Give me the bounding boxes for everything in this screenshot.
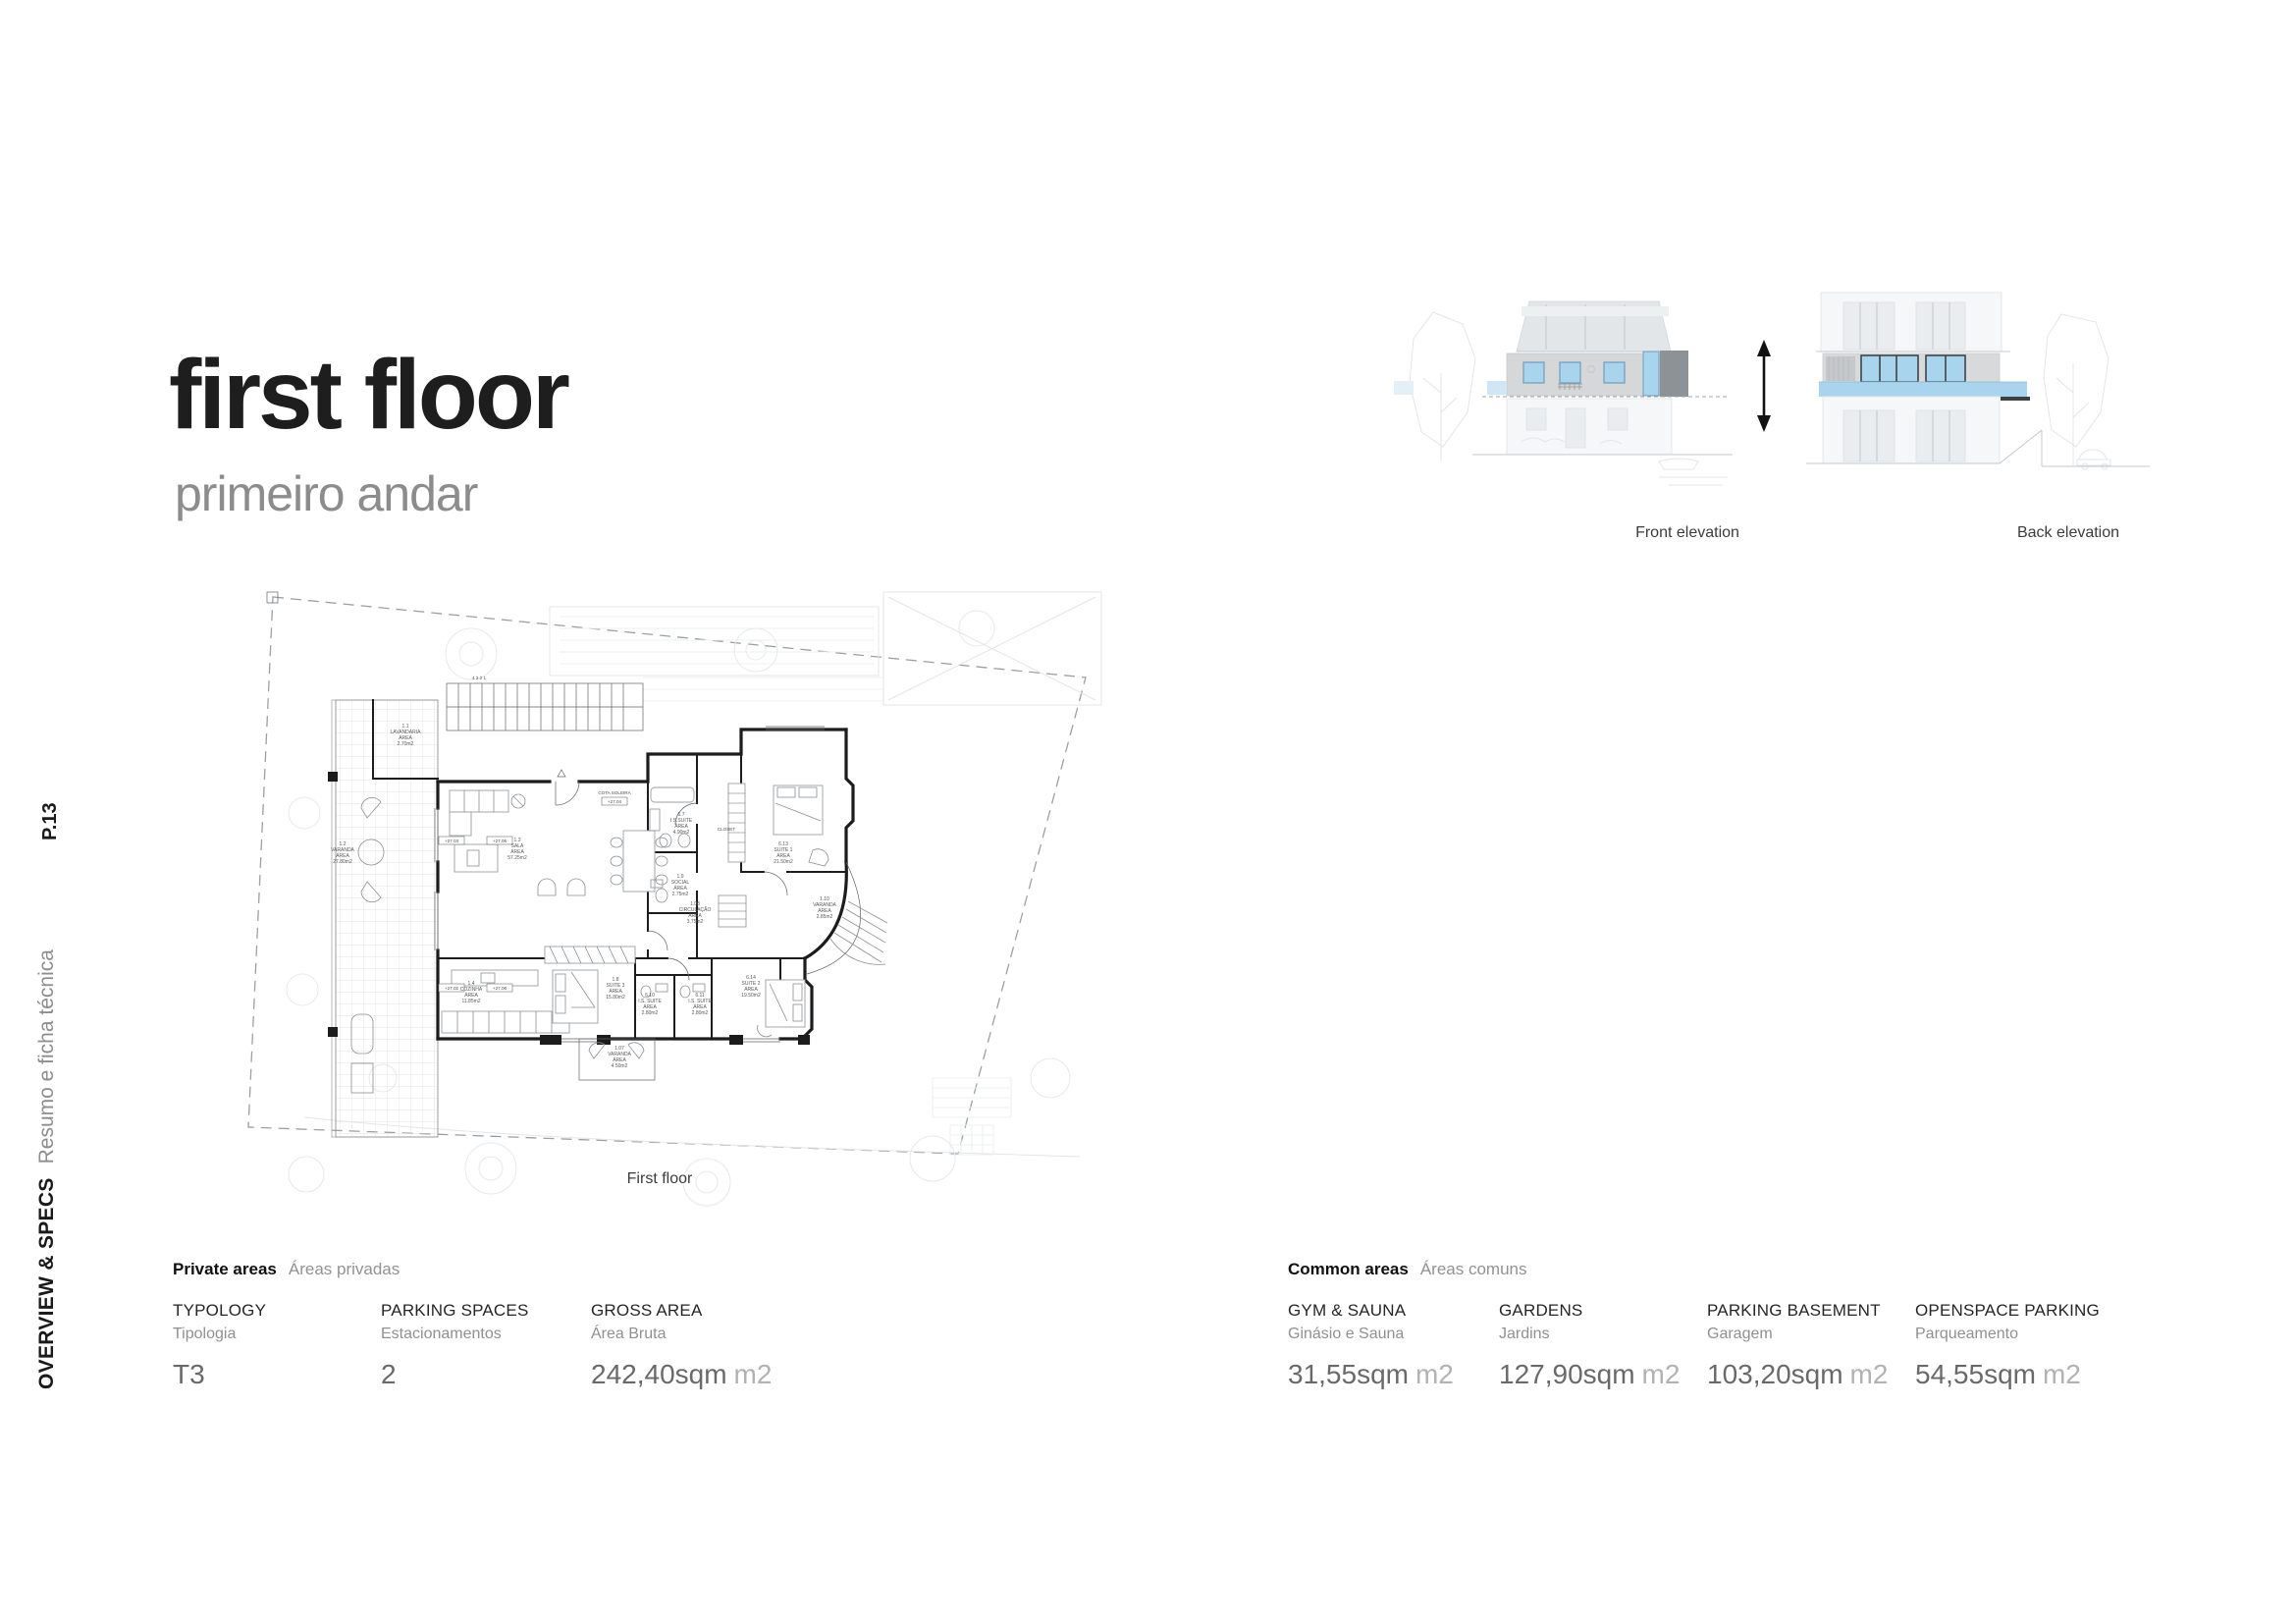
svg-text:ÁREA: ÁREA (818, 907, 831, 914)
svg-text:19.50m2: 19.50m2 (741, 993, 761, 999)
svg-text:2.80m2: 2.80m2 (692, 1010, 709, 1016)
room-label: 1.10VARANDAÁREA2.85m2 (813, 896, 836, 920)
svg-text:2.75m2: 2.75m2 (672, 892, 689, 897)
svg-text:ÁREA: ÁREA (464, 992, 478, 999)
svg-text:2.70m2: 2.70m2 (398, 741, 414, 747)
svg-text:ÁREA: ÁREA (674, 823, 688, 830)
page-subtitle: primeiro andar (175, 469, 477, 518)
svg-text:15.80m2: 15.80m2 (606, 995, 625, 1001)
svg-text:21.50m2: 21.50m2 (774, 859, 793, 865)
svg-text:ÁREA: ÁREA (776, 852, 790, 859)
room-label: 6.14SUITE 2ÁREA19.50m2 (741, 975, 761, 999)
spec-typology: TYPOLOGY Tipologia T3 (173, 1301, 381, 1390)
balcony-strip (328, 700, 438, 1137)
elevation-drawings (1374, 265, 2160, 550)
svg-text:ÁREA: ÁREA (693, 1003, 707, 1010)
svg-text:ÁREA: ÁREA (399, 734, 412, 741)
front-elevation (1394, 301, 1733, 485)
svg-text:CIRCULAÇÃO: CIRCULAÇÃO (679, 906, 712, 913)
svg-text:ÁREA: ÁREA (643, 1003, 657, 1010)
svg-text:57.25m2: 57.25m2 (507, 855, 527, 861)
svg-text:+27.06: +27.06 (493, 986, 507, 991)
private-areas-subtitle: Áreas privadas (289, 1260, 400, 1278)
private-areas-section: Private areasÁreas privadas TYPOLOGY Tip… (173, 1260, 817, 1390)
spec-parking-basement: PARKING BASEMENT Garagem 103,20sqmm2 (1707, 1301, 1915, 1390)
sidebar-section-sublabel: Resumo e ficha técnica (35, 949, 58, 1164)
spec-gardens: GARDENS Jardins 127,90sqmm2 (1499, 1301, 1707, 1390)
cota-value: +27.04 (608, 799, 622, 804)
svg-text:2.80m2: 2.80m2 (642, 1010, 659, 1016)
back-elevation (1806, 293, 2150, 469)
svg-text:ÁREA: ÁREA (744, 986, 758, 993)
svg-text:2.85m2: 2.85m2 (817, 914, 833, 920)
stair-numbers: 4 3 2 1 (472, 676, 486, 680)
svg-text:+27.03: +27.03 (445, 839, 459, 843)
cota-label: COTA SOLEIRA (598, 790, 631, 795)
page-number: P.13 (39, 802, 62, 840)
brochure-page: { "page": { "title": "first floor", "sub… (0, 0, 2296, 1624)
exterior-stair: 4 3 2 1 (447, 676, 643, 731)
svg-text:4.90m2: 4.90m2 (673, 830, 690, 836)
page-title: first floor (169, 346, 567, 444)
spec-openspace-parking: OPENSPACE PARKING Parqueamento 54,55sqmm… (1915, 1301, 2151, 1390)
svg-text:11.85m2: 11.85m2 (461, 999, 480, 1004)
svg-text:ÁREA: ÁREA (510, 848, 524, 855)
spec-gross-area: GROSS AREA Área Bruta 242,40sqmm2 (591, 1301, 817, 1390)
spec-parking-spaces: PARKING SPACES Estacionamentos 2 (381, 1301, 591, 1390)
common-areas-subtitle: Áreas comuns (1420, 1260, 1527, 1278)
svg-text:ÁREA: ÁREA (688, 912, 702, 919)
svg-text:ÁREA: ÁREA (613, 1056, 626, 1063)
sidebar-section: OVERVIEW & SPECSResumo e ficha técnica (35, 949, 59, 1389)
common-areas-heading: Common areasÁreas comuns (1288, 1260, 2151, 1279)
height-arrow-icon (1757, 340, 1771, 432)
back-elevation-label: Back elevation (1970, 524, 2166, 542)
floor-plan-drawing: 4 3 2 1 (245, 568, 1109, 1216)
room-label: 6.10I.S. SUITEÁREA2.80m2 (638, 993, 662, 1016)
room-label: 1.8SUITE 3ÁREA15.80m2 (606, 977, 625, 1001)
room-label: 1.9SOCIALÁREA2.75m2 (671, 874, 690, 897)
floor-plan-caption: First floor (561, 1170, 758, 1188)
private-areas-heading: Private areasÁreas privadas (173, 1260, 817, 1279)
svg-text:4.50m2: 4.50m2 (612, 1063, 628, 1069)
svg-text:+27.02: +27.02 (445, 986, 459, 991)
common-areas-title: Common areas (1288, 1260, 1409, 1278)
svg-text:3.75m2: 3.75m2 (687, 919, 704, 925)
svg-text:27.80m2: 27.80m2 (333, 859, 352, 865)
room-label: 6.11I.S. SUITEÁREA2.80m2 (688, 993, 712, 1016)
svg-text:ÁREA: ÁREA (336, 852, 349, 859)
room-label: 1.07VARANDAÁREA4.50m2 (608, 1046, 631, 1069)
svg-text:+27.06: +27.06 (493, 839, 507, 843)
svg-text:ÁREA: ÁREA (609, 988, 622, 995)
spec-gym-sauna: GYM & SAUNA Ginásio e Sauna 31,55sqmm2 (1288, 1301, 1499, 1390)
sidebar-section-label: OVERVIEW & SPECS (35, 1177, 58, 1389)
svg-text:ÁREA: ÁREA (673, 885, 687, 892)
closet-label: CLOSET (718, 827, 736, 832)
common-areas-section: Common areasÁreas comuns GYM & SAUNA Gin… (1288, 1260, 2151, 1390)
room-label: 6.7I.S.SUITEÁREA4.90m2 (670, 812, 693, 836)
private-areas-title: Private areas (173, 1260, 277, 1278)
room-label: 6.13SUITE 1ÁREA21.50m2 (774, 841, 793, 865)
front-elevation-label: Front elevation (1589, 524, 1786, 542)
